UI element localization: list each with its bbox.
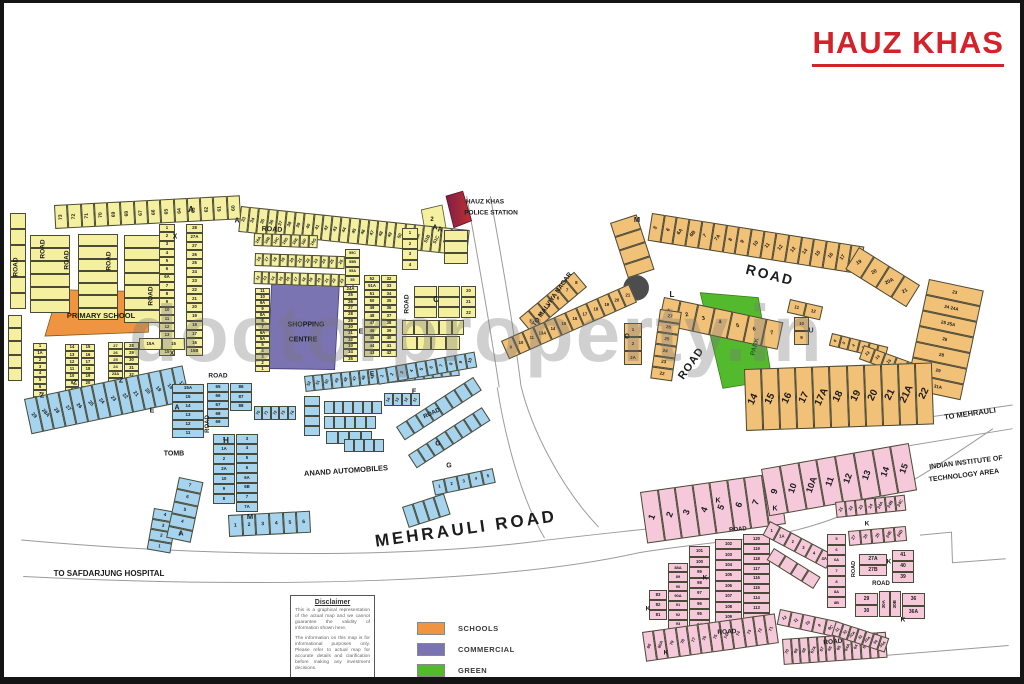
plot-strip-65: 122A — [624, 323, 642, 365]
plot-cell: 113 — [743, 603, 770, 613]
plot-cell: 31 — [124, 364, 139, 371]
plot-strip-39 — [324, 416, 376, 429]
plot-number: 28 — [348, 312, 353, 316]
plot-number: 17 — [264, 257, 270, 263]
road-v5: ROAD — [149, 286, 156, 305]
plot-number: 14 — [270, 275, 276, 281]
plot-number: 42 — [387, 351, 392, 355]
plot-number: 33 — [857, 634, 863, 640]
plot-cell: 25 — [186, 259, 203, 268]
plot-number: 15 — [561, 322, 566, 326]
plot-number: 1 — [409, 231, 411, 235]
plot-strip-83: 2930 — [855, 593, 878, 617]
marker-k3: K — [664, 651, 669, 658]
plot-number: 11 — [70, 367, 74, 371]
plot-number: 25 — [348, 293, 353, 297]
plot-number: 14 — [386, 397, 392, 403]
legend-swatch — [417, 664, 445, 677]
plot-cell: 46 — [364, 327, 380, 334]
plot-number: 36 — [269, 219, 275, 225]
plot-strip-20 — [402, 320, 464, 335]
plot-number: 6A — [677, 228, 685, 236]
plot-cell: 23 — [186, 277, 203, 286]
plot-number: 6 — [753, 328, 757, 334]
plot-cell: 14 — [65, 344, 79, 351]
plot-number: 6 — [835, 548, 837, 552]
plot-number: 9A — [260, 301, 265, 305]
plot-number: 4 — [166, 251, 168, 255]
plot-cell: 65 — [207, 383, 229, 392]
plot-strip-13: 55C55B55A55 — [345, 249, 360, 285]
plot-number: 43 — [370, 351, 375, 355]
plot-cell: 81 — [649, 610, 667, 620]
plot-number: 73 — [281, 410, 287, 416]
plot-number: 4 — [163, 513, 166, 518]
marker-m1: M — [247, 513, 253, 521]
plot-number: 10 — [165, 308, 170, 312]
plot-cell — [304, 396, 320, 406]
plot-number: 19 — [849, 389, 863, 403]
plot-number: 19 — [604, 303, 609, 307]
plot-number: 2 — [390, 372, 395, 376]
plot-number: 20 — [289, 258, 295, 264]
plot-number: 9 — [800, 336, 803, 341]
plot-number: 64 — [178, 207, 183, 213]
plot-cell: 11 — [159, 315, 175, 323]
plot-cell — [10, 277, 26, 293]
plot-number: 78 — [680, 638, 686, 644]
disclaimer-para-1: This is a graphical representation of th… — [295, 608, 370, 632]
plot-number: 33 — [387, 284, 392, 288]
plot-cell: 61 — [213, 196, 228, 221]
plot-cell: 33 — [381, 282, 397, 289]
plot-cell: 41 — [381, 342, 397, 349]
plot-cell: 30A — [879, 591, 890, 617]
legend-swatch — [417, 643, 445, 656]
plot-number: 16 — [192, 341, 197, 345]
plot-number: 64 — [854, 644, 860, 650]
plot-cell: 105 — [715, 570, 742, 580]
plot-cell: 48 — [364, 312, 380, 319]
plot-cell — [324, 416, 334, 429]
plot-cell — [30, 287, 70, 300]
plot-number: 16F — [300, 237, 307, 245]
plot-number: 33 — [348, 344, 353, 348]
plot-number: 47 — [370, 321, 375, 325]
plot-number: 11 — [413, 397, 419, 403]
plot-number: 5A — [260, 337, 265, 341]
plot-number: 44 — [370, 344, 375, 348]
plot-number: 92 — [676, 613, 680, 617]
marker-x1: X — [173, 233, 178, 240]
plot-number: 18 — [832, 390, 846, 404]
marker-z2: Z — [73, 379, 77, 386]
marker-e2: E — [150, 407, 155, 414]
plot-cell — [354, 439, 364, 452]
plot-cell — [431, 336, 446, 350]
plot-number: 4 — [409, 369, 414, 373]
plot-cell: 92 — [668, 610, 688, 619]
plot-cell — [452, 320, 464, 335]
plot-cell: 8B — [827, 597, 846, 608]
plot-cell: 55B — [345, 258, 360, 267]
plot-number: 12 — [777, 244, 784, 251]
plot-number: 16A — [255, 235, 262, 243]
plot-number: 25 — [664, 337, 670, 342]
plot-cell — [353, 401, 363, 414]
plot-cell — [304, 406, 320, 416]
plot-cell: 20 — [864, 364, 883, 427]
plot-number: 28 — [52, 407, 59, 414]
plot-cell: 22 — [461, 307, 476, 318]
plot-cell — [438, 286, 460, 297]
shopping-label-2: CENTRE — [289, 336, 318, 343]
plot-cell: 16D — [281, 234, 291, 247]
plot-number: 27 — [113, 344, 117, 348]
marker-k1: K — [715, 497, 720, 504]
plot-cell: 19 — [186, 312, 203, 321]
marker-a6: A — [437, 226, 442, 233]
plot-number: 14 — [879, 465, 891, 477]
marker-f: F — [412, 388, 416, 395]
plot-number: 16 — [86, 353, 91, 357]
plot-cell: 7 — [159, 282, 175, 290]
plot-strip-44: 34566A6B77A — [236, 434, 258, 512]
plot-cell: 102 — [715, 539, 742, 549]
plot-cell: 16 — [778, 367, 797, 430]
plot-number: 9 — [769, 487, 779, 495]
plot-number: 60 — [231, 205, 236, 211]
plot-number: 12 — [842, 472, 854, 484]
plot-number: 5 — [183, 507, 186, 512]
plot-number: 9 — [509, 346, 511, 350]
plot-number: 120 — [753, 537, 760, 541]
plot-cell: 24D — [894, 526, 907, 542]
plot-cell: 3 — [236, 434, 258, 444]
plot-number: 6A — [164, 275, 170, 279]
plot-number: 5 — [288, 520, 291, 525]
plot-strip-10: 16A16B16C16D16E16F16G — [254, 233, 318, 248]
plot-number: 49 — [370, 306, 375, 310]
plot-number: 24 — [868, 503, 874, 509]
plot-number: 35 — [348, 357, 353, 361]
plot-number: 107 — [725, 594, 732, 598]
plot-number: 29 — [864, 597, 870, 602]
plot-number: 68 — [215, 412, 220, 417]
plot-cell: 6A — [236, 473, 258, 483]
plot-number: 90A — [674, 594, 681, 598]
plot-number: 101 — [696, 549, 703, 553]
plot-number: 5 — [39, 378, 41, 382]
plot-number: 27A — [191, 235, 199, 239]
plot-cell — [402, 336, 417, 350]
plot-cell: 37 — [381, 312, 397, 319]
plot-number: 8 — [728, 237, 734, 242]
plot-number: 80 — [647, 643, 653, 649]
plot-cell — [444, 241, 468, 252]
plot-strip-68: 838281 — [649, 590, 667, 620]
plot-cell: 91 — [668, 601, 688, 610]
plot-strip-29: 15A15 — [139, 338, 185, 350]
plot-cell: 29 — [124, 349, 139, 356]
plot-cell: 90A — [668, 591, 688, 600]
plot-cell — [427, 320, 439, 335]
plot-cell: 5 — [236, 454, 258, 464]
plot-cell: 26 — [186, 250, 203, 259]
plot-number: 68 — [802, 647, 808, 653]
plot-cell: 66 — [207, 392, 229, 401]
plot-number: 25 25A — [940, 320, 955, 327]
plot-number: 67A — [810, 645, 817, 654]
plot-number: 26 — [666, 325, 672, 330]
plot-number: 5 — [166, 259, 168, 263]
plot-cell — [344, 439, 354, 452]
marker-c: C — [433, 296, 439, 304]
plot-cell: 16G — [308, 235, 318, 248]
plot-cell — [334, 416, 344, 429]
plot-cell — [30, 300, 70, 313]
plot-number: 52 — [306, 380, 312, 386]
plot-cell: 2 — [33, 357, 47, 364]
plot-number: 11 — [186, 431, 191, 436]
plot-cell: 21 — [461, 297, 476, 308]
plot-number: 41 — [314, 224, 320, 230]
plot-number: 69 — [112, 211, 117, 217]
plot-cell: 4 — [236, 444, 258, 454]
plot-number: 21 — [838, 506, 844, 512]
plot-number: 7A — [715, 234, 723, 242]
plot-cell: 96 — [689, 599, 710, 610]
plot-number: 21 — [902, 288, 909, 295]
plot-number: 50 — [325, 379, 331, 385]
plot-cell: 16C — [272, 234, 282, 247]
plot-number: 23 — [661, 360, 667, 365]
marker-a4: A — [174, 404, 179, 411]
plot-number: 13 — [395, 397, 401, 403]
plot-cell: 86 — [230, 383, 252, 392]
plot-number: 65 — [165, 208, 170, 214]
marker-e1: E — [359, 328, 364, 335]
marker-2: 2 — [430, 217, 433, 223]
plot-cell: 22 — [915, 362, 934, 425]
plot-number: 18 — [272, 257, 278, 263]
plot-number: 26 — [338, 259, 344, 265]
plot-number: 3 — [682, 508, 692, 516]
plot-number: 52 — [370, 277, 375, 281]
plot-number: 4 — [39, 371, 41, 375]
plot-number: 61 — [218, 205, 223, 211]
plot-number: 14 — [70, 345, 75, 349]
plot-cell: 67 — [207, 401, 229, 410]
plot-number: 71 — [85, 212, 90, 218]
plot-cell: 1 — [33, 343, 47, 350]
plot-number: 34 — [873, 639, 879, 645]
plot-number: 45 — [351, 228, 357, 234]
plot-cell — [10, 293, 26, 309]
map-canvas: 7372717069686766656463626160333435363738… — [0, 0, 1024, 684]
plot-number: 1 — [261, 367, 263, 371]
plot-number: 118 — [753, 557, 760, 561]
plot-number: 2 — [166, 234, 168, 238]
plot-cell: 8 — [213, 494, 235, 504]
plot-cell: 5 — [283, 511, 298, 534]
plot-cell: 3 — [159, 241, 175, 249]
plot-cell: 64 — [173, 198, 188, 223]
plot-number: 2A — [221, 467, 227, 471]
plot-cell: 6 — [236, 463, 258, 473]
legend-item-green: GREEN — [417, 664, 515, 677]
plot-cell — [324, 401, 334, 414]
plot-number: 23 — [952, 290, 958, 295]
plot-number: 8 — [223, 497, 225, 501]
plot-cell: 2 — [213, 454, 235, 464]
plot-number: 7 — [566, 289, 569, 294]
plot-number: 90 — [676, 585, 680, 589]
plot-number: 87 — [238, 395, 243, 400]
plot-number: 27B — [868, 568, 877, 573]
plot-cell: 4 — [402, 260, 418, 271]
road-h2: ROAD — [208, 374, 227, 381]
plot-cell: 19 — [81, 373, 95, 380]
plot-cell: 14 — [744, 368, 763, 431]
plot-number: 31 — [834, 626, 840, 632]
plot-number: 22 — [192, 288, 197, 292]
plot-number: 15 — [86, 345, 91, 349]
plot-number: 41 — [900, 553, 906, 558]
plot-number: 21 — [466, 300, 471, 304]
plot-strip-85: 3636A — [902, 593, 925, 619]
plot-cell — [402, 320, 414, 335]
plot-number: 2 — [160, 533, 163, 538]
plot-cell: 16B — [263, 233, 273, 246]
plot-number: 24 — [98, 397, 105, 404]
plot-cell — [304, 416, 320, 426]
plot-number: 6 — [39, 385, 41, 389]
disclaimer-heading: Disclaimer — [295, 599, 370, 606]
plot-cell: 52 — [364, 275, 380, 282]
plot-strip-7: 1234566A789101112131415 — [159, 224, 175, 356]
plot-number: 69 — [215, 420, 220, 425]
marker-m2: M — [634, 216, 640, 224]
plot-number: 6 — [666, 227, 672, 232]
plot-cell — [78, 283, 118, 295]
plot-number: 64A — [844, 643, 851, 652]
plot-number: 1 — [234, 523, 237, 528]
plot-cell: 32 — [381, 275, 397, 282]
plot-number: 41 — [387, 344, 392, 348]
plot-cell: 4 — [269, 512, 284, 535]
plot-number: 12 — [165, 325, 170, 329]
plot-number: 9 — [261, 307, 263, 311]
plot-number: 6 — [734, 500, 744, 508]
plot-cell: 30 — [124, 357, 139, 364]
plot-number: 86 — [238, 385, 243, 390]
plot-number: 96 — [697, 602, 702, 606]
plot-number: 16C — [273, 236, 280, 244]
marker-k6: K — [865, 522, 870, 529]
plot-number: 108 — [725, 605, 732, 609]
plot-cell: 21A — [898, 363, 917, 426]
plot-number: 1A — [779, 534, 784, 538]
plot-number: 10A — [804, 475, 818, 494]
plot-number: 116 — [753, 576, 760, 580]
plot-number: 24 — [192, 270, 197, 274]
plot-number: 4 — [275, 521, 278, 526]
plot-cell: 90 — [668, 582, 688, 591]
plot-number: 9 — [166, 300, 168, 304]
plot-cell: 71 — [262, 406, 270, 420]
plot-cell: 25 — [108, 356, 123, 363]
plot-number: 30B — [893, 600, 898, 608]
plot-cell: 116 — [743, 574, 770, 584]
plot-number: 14 — [802, 248, 809, 255]
plot-number: 2 — [792, 540, 794, 544]
plot-number: 3 — [399, 371, 404, 375]
plot-number: 65 — [215, 385, 220, 390]
plot-strip-14: 24A2526272829303132333435 — [343, 286, 358, 362]
plot-cell: 103 — [715, 549, 742, 559]
plot-number: 31 — [348, 331, 353, 335]
plot-number: 8 — [835, 580, 837, 584]
plot-number: 3 — [39, 365, 41, 369]
plot-number: 9 — [223, 487, 225, 491]
plot-number: 11 — [794, 305, 800, 310]
plot-number: 20 — [192, 305, 197, 309]
plot-number: 99 — [697, 570, 702, 574]
plot-cell: 12 — [172, 420, 204, 429]
plot-cell: 12 — [402, 393, 411, 406]
plot-number: 3 — [409, 252, 411, 256]
plot-number: 76 — [702, 635, 708, 641]
marker-z3: Z — [119, 377, 123, 384]
plot-number: 39 — [296, 222, 302, 228]
plot-number: 88 — [238, 404, 243, 409]
marker-k4: K — [703, 576, 708, 583]
plot-number: 7 — [439, 364, 444, 368]
plot-cell: 5 — [33, 377, 47, 384]
plot-number: 3 — [166, 242, 168, 246]
plot-number: 4 — [852, 343, 856, 347]
plot-cell — [8, 355, 22, 368]
plot-number: 12 — [70, 360, 75, 364]
plot-number: 22 — [332, 277, 338, 283]
plot-number: 11 — [793, 618, 799, 624]
plot-number: 44 — [342, 227, 348, 233]
plot-number: 36 — [387, 306, 392, 310]
road-v7: ROAD — [205, 415, 211, 433]
plot-cell: 11 — [65, 365, 79, 372]
plot-cell: 40 — [892, 561, 914, 572]
marker-x2: X — [170, 350, 175, 357]
plot-cell: 7 — [827, 566, 846, 577]
plot-cell: 68 — [120, 201, 135, 226]
plot-number: 4 — [813, 551, 815, 555]
plot-number: 40 — [305, 223, 311, 229]
iit-boundary-low — [886, 645, 1008, 655]
plot-number: 11 — [765, 242, 772, 249]
police-label-1: HAUZ KHAS — [466, 200, 504, 207]
plot-number: 39 — [387, 329, 392, 333]
plot-number: 48 — [343, 377, 349, 383]
plot-number: 20 — [866, 388, 880, 402]
plot-cell — [363, 401, 373, 414]
plot-number: 13 — [864, 351, 870, 357]
plot-number: 40 — [900, 564, 906, 569]
plot-number: 20 — [466, 289, 471, 293]
plot-number: 8 — [261, 319, 263, 323]
plot-number: 98 — [697, 581, 702, 585]
plot-number: 102 — [725, 542, 732, 546]
